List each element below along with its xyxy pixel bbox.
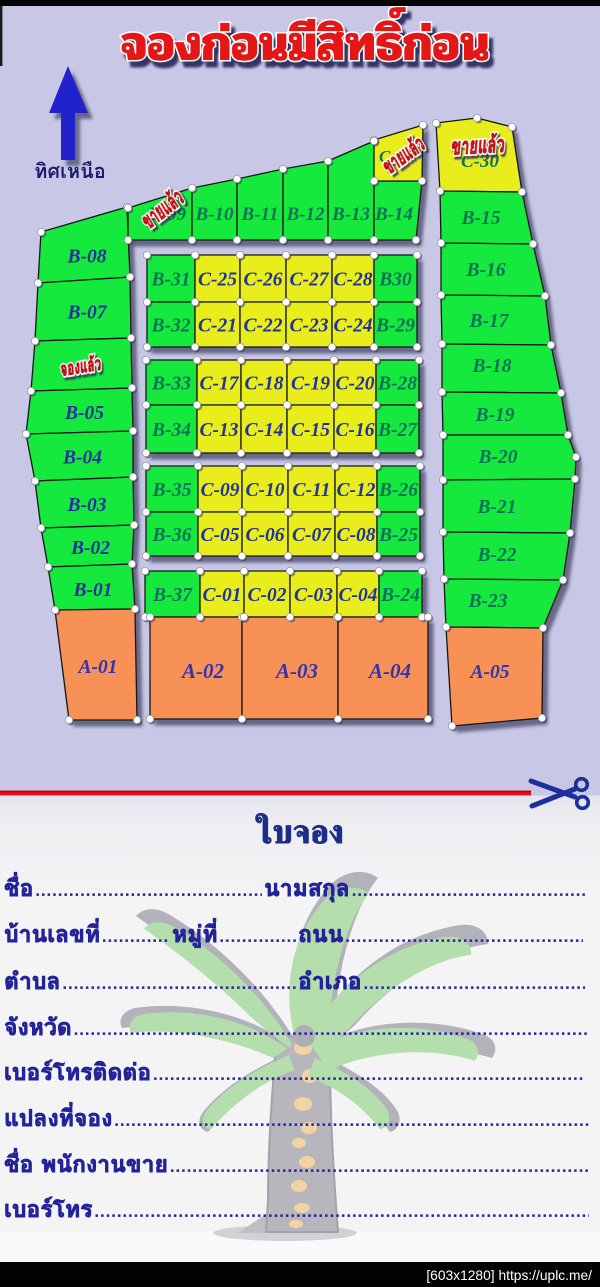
- svg-text:B-29: B-29: [375, 316, 415, 337]
- svg-text:B-20: B-20: [478, 447, 518, 468]
- svg-text:B-17: B-17: [469, 311, 510, 332]
- svg-text:B-14: B-14: [374, 204, 413, 225]
- svg-text:B-23: B-23: [468, 591, 508, 612]
- svg-text:C-26: C-26: [244, 270, 283, 291]
- svg-text:C-07: C-07: [292, 525, 332, 546]
- svg-text:C-21: C-21: [198, 316, 237, 337]
- svg-text:B-03: B-03: [67, 495, 107, 516]
- svg-text:B-10: B-10: [195, 204, 235, 225]
- svg-text:C-25: C-25: [198, 270, 237, 291]
- svg-text:A-03: A-03: [274, 659, 318, 683]
- svg-text:C-02: C-02: [248, 585, 287, 606]
- svg-text:C-03: C-03: [294, 585, 333, 606]
- svg-text:C-09: C-09: [201, 480, 240, 501]
- svg-text:C-05: C-05: [201, 525, 240, 546]
- svg-text:A-05: A-05: [469, 662, 510, 683]
- svg-text:C-10: C-10: [246, 480, 285, 501]
- svg-text:B-27: B-27: [377, 420, 418, 441]
- svg-text:B-05: B-05: [64, 403, 104, 424]
- svg-text:C-28: C-28: [334, 270, 373, 291]
- svg-text:B-34: B-34: [151, 420, 191, 441]
- svg-text:B30: B30: [378, 270, 412, 291]
- svg-text:B-04: B-04: [62, 448, 102, 469]
- svg-text:C-22: C-22: [244, 316, 283, 337]
- svg-text:B-35: B-35: [152, 480, 192, 501]
- svg-text:[603x1280] https://uplc.me/: [603x1280] https://uplc.me/: [426, 1268, 592, 1283]
- svg-text:B-07: B-07: [67, 303, 108, 324]
- svg-text:C-18: C-18: [245, 374, 284, 395]
- svg-text:C-08: C-08: [337, 525, 376, 546]
- svg-text:B-08: B-08: [67, 247, 107, 268]
- svg-text:B-28: B-28: [377, 374, 417, 395]
- svg-text:B-01: B-01: [73, 580, 113, 601]
- svg-text:C-24: C-24: [334, 316, 373, 337]
- svg-text:A-01: A-01: [77, 657, 118, 678]
- svg-text:C-06: C-06: [246, 525, 285, 546]
- svg-text:A-04: A-04: [367, 659, 411, 683]
- svg-text:B-37: B-37: [152, 585, 193, 606]
- svg-text:B-21: B-21: [477, 497, 517, 518]
- svg-text:B-26: B-26: [378, 480, 418, 501]
- svg-text:C-13: C-13: [200, 420, 239, 441]
- svg-text:C-23: C-23: [290, 316, 329, 337]
- svg-text:B-32: B-32: [151, 316, 191, 337]
- svg-text:B-24: B-24: [380, 585, 420, 606]
- svg-text:B-31: B-31: [151, 270, 191, 291]
- svg-text:B-13: B-13: [331, 204, 370, 225]
- svg-text:C-12: C-12: [337, 480, 376, 501]
- svg-text:B-12: B-12: [286, 204, 326, 225]
- svg-text:C-27: C-27: [290, 270, 330, 291]
- svg-text:C-20: C-20: [336, 374, 375, 395]
- svg-text:B-16: B-16: [466, 260, 506, 281]
- svg-text:B-25: B-25: [378, 525, 418, 546]
- svg-text:C-19: C-19: [291, 374, 330, 395]
- svg-text:B-11: B-11: [241, 204, 279, 225]
- svg-text:C-15: C-15: [291, 420, 330, 441]
- svg-text:B-19: B-19: [475, 405, 515, 426]
- svg-text:B-15: B-15: [461, 208, 501, 229]
- svg-text:C-17: C-17: [200, 374, 240, 395]
- svg-text:B-36: B-36: [152, 525, 192, 546]
- svg-text:B-22: B-22: [477, 545, 517, 566]
- svg-text:B-18: B-18: [472, 356, 512, 377]
- svg-text:A-02: A-02: [180, 659, 225, 683]
- svg-text:C-14: C-14: [245, 420, 284, 441]
- svg-text:C-11: C-11: [293, 480, 331, 501]
- svg-text:C-16: C-16: [336, 420, 375, 441]
- svg-text:B-33: B-33: [151, 374, 191, 395]
- svg-text:C-04: C-04: [339, 585, 378, 606]
- svg-text:B-02: B-02: [70, 538, 110, 559]
- svg-text:C-01: C-01: [203, 585, 242, 606]
